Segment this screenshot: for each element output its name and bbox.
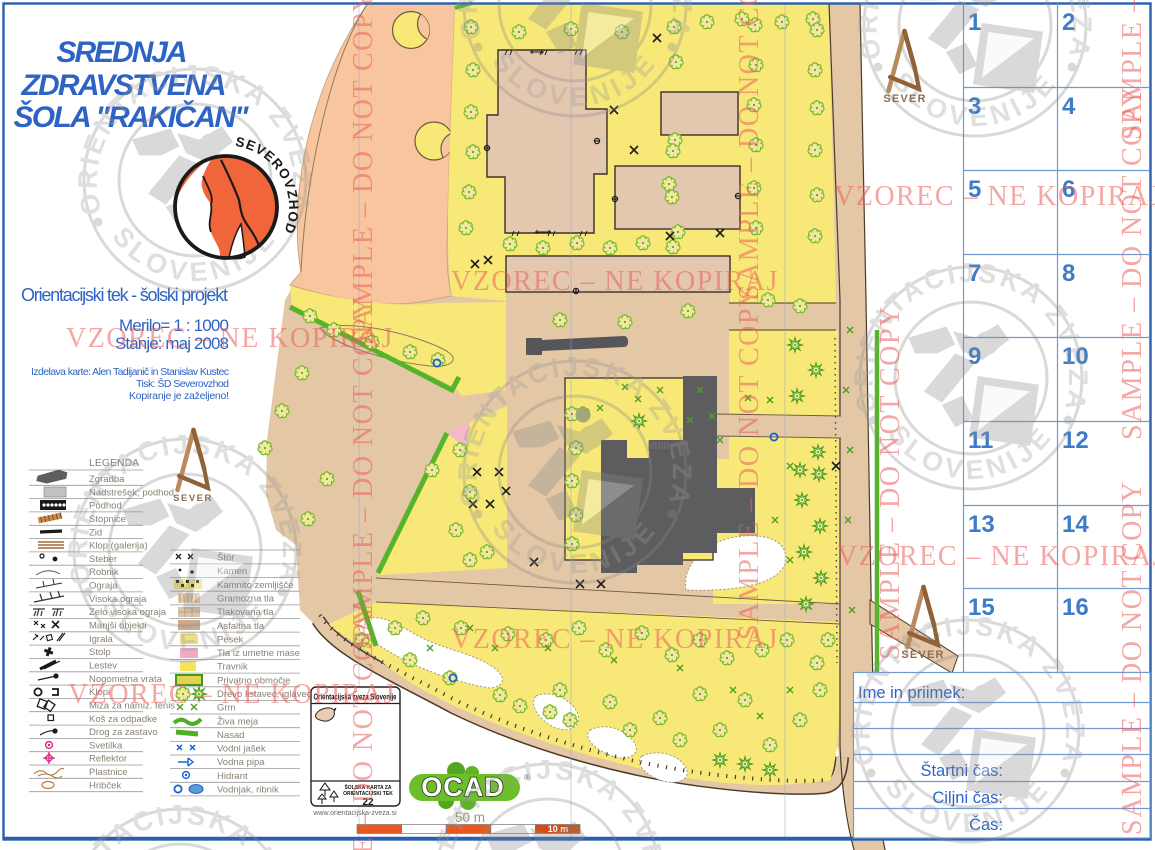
svg-text:4: 4 [1062,93,1076,120]
svg-text:SAMPLE – DO NOT COPY: SAMPLE – DO NOT COPY [875,305,906,660]
svg-text:SAMPLE – DO NOT COPY: SAMPLE – DO NOT COPY [348,0,379,345]
svg-text:Svetilka: Svetilka [89,740,123,751]
svg-text:SAMPLE – DO NOT COPY: SAMPLE – DO NOT COPY [734,285,765,640]
svg-text:Vodni jašek: Vodni jašek [217,744,266,755]
svg-text:Hidrant: Hidrant [217,771,248,782]
svg-text:VZOREC – NE KOPIRAJ: VZOREC – NE KOPIRAJ [451,266,779,297]
svg-text:Vodna pipa: Vodna pipa [217,757,265,768]
svg-text:SAMPLE – DO NOT COPY: SAMPLE – DO NOT COPY [1117,480,1148,835]
svg-text:Kopiranje je zaželjeno!: Kopiranje je zaželjeno! [129,390,229,402]
svg-text:SAMPLE – DO NOT COPY: SAMPLE – DO NOT COPY [348,600,379,850]
svg-text:SREDNJA: SREDNJA [57,36,188,69]
svg-text:SEVER: SEVER [883,93,926,105]
svg-text:SAMPLE – DO NOT COPY: SAMPLE – DO NOT COPY [1117,0,1148,140]
svg-text:Klop (galerija): Klop (galerija) [89,541,148,552]
svg-text:Tla iz umetne mase: Tla iz umetne mase [217,648,300,659]
svg-text:VZOREC – NE KOPIRAJ: VZOREC – NE KOPIRAJ [68,679,396,710]
svg-text:SAMPLE – DO NOT COPY: SAMPLE – DO NOT COPY [348,295,379,650]
svg-text:VZOREC – NE KOPIRAJ: VZOREC – NE KOPIRAJ [451,624,779,655]
svg-text:Plastnice: Plastnice [89,767,128,778]
svg-text:Izdelava karte: Alen Tadijanič: Izdelava karte: Alen Tadijanič in Stanis… [31,366,229,378]
svg-text:12: 12 [1062,427,1089,454]
svg-text:Koš za odpadke: Koš za odpadke [89,714,157,725]
svg-text:13: 13 [968,511,995,538]
svg-text:VZOREC – NE KOPIRAJ: VZOREC – NE KOPIRAJ [66,323,394,354]
svg-text:Drog za zastavo: Drog za zastavo [89,727,158,738]
svg-text:SEVER: SEVER [901,649,944,661]
svg-text:SEVER: SEVER [173,493,213,504]
svg-text:Živa meja: Živa meja [217,716,259,727]
svg-text:Tisk: ŠD Severovzhod: Tisk: ŠD Severovzhod [136,377,229,390]
svg-text:Hribček: Hribček [89,780,121,791]
svg-text:Reflektor: Reflektor [89,754,127,765]
svg-text:Travnik: Travnik [217,662,248,673]
svg-text:16: 16 [1062,594,1089,621]
svg-text:VZOREC – NE KOPIRAJ: VZOREC – NE KOPIRAJ [834,181,1155,212]
svg-text:14: 14 [1062,511,1089,538]
svg-text:Nasad: Nasad [217,730,244,741]
svg-text:Stolp: Stolp [89,647,111,658]
svg-text:8: 8 [1062,260,1075,287]
svg-text:Lestev: Lestev [89,661,117,672]
svg-text:Vodnjak, ribnik: Vodnjak, ribnik [217,785,279,796]
svg-text:Igrala: Igrala [89,634,113,645]
svg-text:Orientacijski tek - šolski pro: Orientacijski tek - šolski projekt [21,285,228,305]
svg-text:SAMPLE – DO NOT COPY: SAMPLE – DO NOT COPY [734,0,765,300]
